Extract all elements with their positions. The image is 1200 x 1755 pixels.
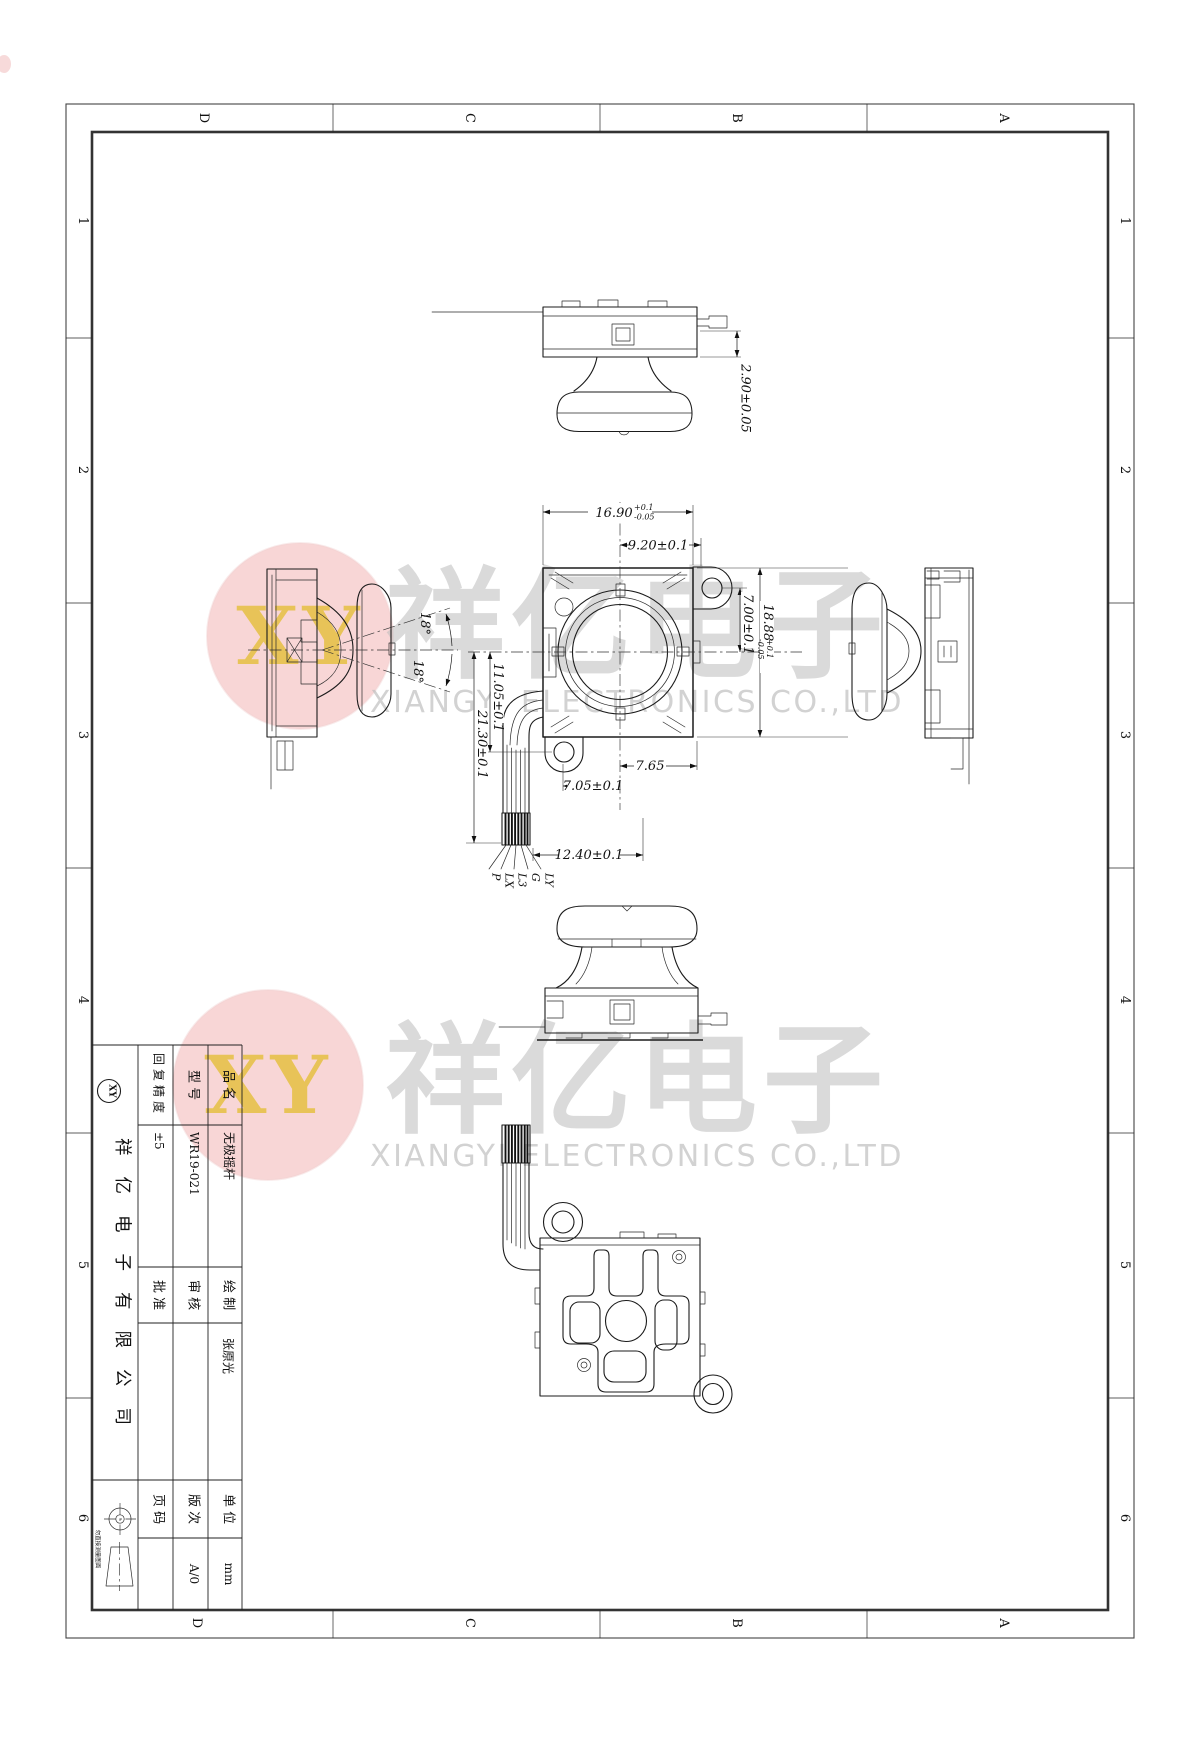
side-blocks — [925, 571, 960, 723]
zone-number-left-1: 1 — [75, 217, 90, 225]
zone-label: D — [196, 113, 211, 123]
wire-label: LX — [503, 872, 516, 889]
stamp-xy-text: XY — [236, 589, 363, 683]
proj-crosshair — [104, 1503, 136, 1535]
tb-value: 无极摇杆 — [222, 1132, 236, 1180]
dome-inner — [887, 622, 909, 680]
tb-value: mm — [222, 1563, 236, 1586]
ext-lines — [700, 331, 741, 357]
fpc-conductors — [507, 1163, 525, 1249]
cutout-left — [570, 1302, 600, 1343]
dim-tol-plus: +0.1 — [634, 503, 653, 512]
zone-letter-top-c: C — [462, 113, 477, 123]
tb-unit-label: 单 位 — [221, 1494, 236, 1524]
tb-label: 绘 制 — [221, 1280, 236, 1310]
tb-value: 张原光 — [221, 1338, 235, 1374]
dim-text-2130: 21.30±0.1 — [474, 708, 489, 779]
wire-label-g: G — [529, 873, 542, 882]
angle-text-up: 18° — [417, 612, 432, 635]
screw-hole-tr — [673, 1251, 686, 1264]
zone-letter-bottom-b: B — [729, 1618, 744, 1628]
company-name: 祥亿电子有限公司 — [112, 1138, 132, 1446]
projection-symbol: 勿直接测量图面 — [94, 1503, 136, 1591]
wire-label: P — [490, 872, 503, 881]
screw-hole-bl-inner — [581, 1362, 587, 1368]
dim-value: 18° — [410, 660, 425, 683]
body-lines — [925, 568, 973, 738]
zone-label: A — [996, 1617, 1011, 1628]
body-outline — [543, 307, 697, 357]
company-logo-text: XY — [107, 1084, 117, 1098]
watermark-en-upper: XIANGYI ELECTRONICS CO.,LTD — [370, 685, 904, 720]
boss-outer — [544, 1203, 583, 1242]
zone-letter-top-d: D — [196, 113, 211, 123]
fpc-ribbon — [503, 1163, 543, 1270]
company-text: 祥亿电子有限公司 — [112, 1138, 132, 1446]
cutout-bottom — [604, 1351, 646, 1382]
side-tabs — [535, 1288, 705, 1356]
zone-label: 3 — [75, 731, 90, 739]
body-outline — [925, 568, 973, 738]
dim-value: 18° — [417, 612, 432, 635]
dim-text-700: 7.00±0.1 — [740, 592, 755, 655]
zone-label: 3 — [1117, 731, 1132, 739]
zone-label: 1 — [75, 217, 90, 225]
dim-value: 11.05±0.1 — [490, 663, 505, 732]
tb-precision-value: ±5 — [152, 1132, 166, 1150]
zone-label: B — [729, 1618, 744, 1628]
tb-drawn-value: 张原光 — [221, 1338, 235, 1374]
zone-number-right-5: 5 — [1117, 1261, 1132, 1269]
dim-text-1105: 11.05±0.1 — [490, 661, 505, 732]
stick-stem — [574, 357, 671, 391]
pin-right — [697, 316, 727, 328]
zone-letter-top-b: B — [729, 113, 744, 123]
dim-value: 18.88 — [760, 604, 775, 641]
zone-label: C — [462, 113, 477, 123]
tb-rev-value: A/0 — [187, 1563, 201, 1584]
screw-hole-bl — [578, 1359, 591, 1372]
body-flange-lines — [543, 316, 697, 349]
zone-label: 6 — [75, 1514, 90, 1522]
ear-hole-bl — [554, 742, 574, 762]
tb-product-value: 无极摇杆 — [222, 1132, 236, 1180]
center-button — [612, 324, 634, 345]
dome-outer — [556, 947, 698, 988]
zone-label: B — [729, 113, 744, 123]
wire-label: L3 — [516, 872, 529, 887]
center-circle — [606, 1301, 647, 1342]
edge-artifact — [0, 55, 11, 73]
tb-value: A/0 — [187, 1563, 201, 1584]
body-outline — [540, 1238, 700, 1396]
tb-rev-label: 版 次 — [186, 1494, 202, 1524]
tb-value: ±5 — [152, 1132, 166, 1150]
zone-letter-bottom-c: C — [462, 1618, 477, 1628]
wire-label: LY — [543, 872, 556, 889]
zone-number-left-6: 6 — [75, 1514, 90, 1522]
caution-note: 勿直接测量图面 — [94, 1530, 102, 1569]
dim-value: 2.90±0.05 — [738, 363, 753, 433]
zone-label: A — [996, 112, 1011, 123]
fpc-end-hatch — [506, 813, 528, 845]
tb-label: 版 次 — [186, 1494, 202, 1524]
tb-value: WR19-021 — [187, 1132, 201, 1196]
tb-drawn-label: 绘 制 — [221, 1280, 236, 1310]
boss-inner — [552, 1211, 574, 1233]
tb-model-label: 型 号 — [186, 1070, 201, 1100]
tb-label: 审 核 — [186, 1280, 201, 1310]
dim-tol-minus: -0.05 — [634, 513, 655, 522]
zone-label: 4 — [75, 996, 90, 1004]
logo-xy: XY — [107, 1084, 117, 1098]
tb-unit-value: mm — [222, 1563, 236, 1586]
zone-dividers — [66, 104, 1134, 1638]
zone-label: 5 — [1117, 1261, 1132, 1269]
stick-cap — [557, 392, 692, 432]
outer-frame — [66, 104, 1134, 1638]
dim-value: 21.30±0.1 — [474, 709, 489, 779]
watermark-cn-lower: 祥亿电子 — [385, 1010, 889, 1151]
cap-details — [558, 906, 696, 947]
top-tabs — [562, 300, 667, 307]
zone-letter-bottom-d: D — [189, 1618, 204, 1628]
zone-number-left-5: 5 — [75, 1261, 90, 1269]
dome-outer — [887, 609, 921, 693]
zone-label: 5 — [75, 1261, 90, 1269]
wire-label-lx: LX — [503, 872, 516, 889]
zone-number-right-3: 3 — [1117, 731, 1132, 739]
dim-tol-minus: -0.05 — [756, 639, 765, 660]
cross-cutout — [563, 1250, 689, 1392]
ear-inner-br — [703, 1384, 724, 1405]
tb-label: 型 号 — [186, 1070, 201, 1100]
zone-number-left-4: 4 — [75, 996, 90, 1004]
angle-text-down: 18° — [410, 660, 425, 683]
wire-label-ly: LY — [543, 872, 556, 889]
dim-value: 7.00±0.1 — [740, 594, 755, 655]
cutout-right — [655, 1300, 677, 1350]
tb-label: 页 码 — [151, 1494, 166, 1524]
watermark-en-lower: XIANGYI ELECTRONICS CO.,LTD — [370, 1139, 904, 1174]
tb-product-label: 品 名 — [221, 1070, 237, 1100]
zone-number-right-4: 4 — [1117, 996, 1132, 1004]
watermark-cn-upper: 祥亿电子 — [385, 555, 889, 696]
drawing-canvas: XY 祥亿电子 XIANGYI ELECTRONICS CO.,LTD XY 祥… — [0, 0, 1200, 1755]
dim-value-765: 7.65 — [636, 759, 665, 774]
dim-tol-plus: +0.1 — [765, 639, 774, 658]
tb-label: 回复精度 — [152, 1053, 167, 1117]
zone-number-right-1: 1 — [1117, 217, 1132, 225]
tb-label: 单 位 — [221, 1494, 236, 1524]
zone-label: D — [189, 1618, 204, 1628]
drawing-sheet: XY 祥亿电子 XIANGYI ELECTRONICS CO.,LTD XY 祥… — [0, 0, 1200, 1755]
tb-label: 品 名 — [221, 1070, 237, 1100]
dim-text-290: 2.90±0.05 — [738, 363, 753, 433]
tb-precision-label: 回复精度 — [152, 1053, 167, 1117]
zone-label: 6 — [1117, 1514, 1132, 1522]
dim-value-1240: 12.40±0.1 — [555, 848, 624, 863]
dome-inner — [576, 947, 678, 984]
bottom-pin — [951, 570, 969, 784]
inner-frame — [92, 132, 1108, 1610]
zone-label: 1 — [1117, 217, 1132, 225]
zone-number-right-6: 6 — [1117, 1514, 1132, 1522]
view-side-top: 2.90±0.05 — [432, 300, 753, 435]
tb-model-value: WR19-021 — [187, 1132, 201, 1196]
dim-value-705: 7.05±0.1 — [563, 779, 624, 794]
caution-text: 勿直接测量图面 — [94, 1530, 102, 1569]
tb-approved-label: 批 准 — [151, 1280, 166, 1310]
wire-label-l3: L3 — [516, 872, 529, 887]
wire-label-p: P — [490, 872, 503, 881]
zone-label: C — [462, 1618, 477, 1628]
zone-number-left-3: 3 — [75, 731, 90, 739]
screw-hole-tr-inner — [676, 1254, 682, 1260]
zone-label: 2 — [75, 466, 90, 474]
center-button — [938, 641, 957, 662]
bottom-pin — [271, 737, 293, 789]
zone-label: 4 — [1117, 996, 1132, 1004]
cap-outline — [557, 906, 697, 947]
zone-number-right-2: 2 — [1117, 466, 1132, 474]
zone-label: 2 — [1117, 466, 1132, 474]
tb-checked-label: 审 核 — [186, 1280, 201, 1310]
tb-page-label: 页 码 — [151, 1494, 166, 1524]
dim-value-1690: 16.90 — [595, 506, 632, 521]
wire-label: G — [529, 873, 542, 882]
zone-letter-bottom-a: A — [996, 1617, 1011, 1628]
zone-letter-top-a: A — [996, 112, 1011, 123]
dim-value-920: 9.20±0.1 — [628, 539, 689, 554]
zone-number-left-2: 2 — [75, 466, 90, 474]
tb-label: 批 准 — [151, 1280, 166, 1310]
